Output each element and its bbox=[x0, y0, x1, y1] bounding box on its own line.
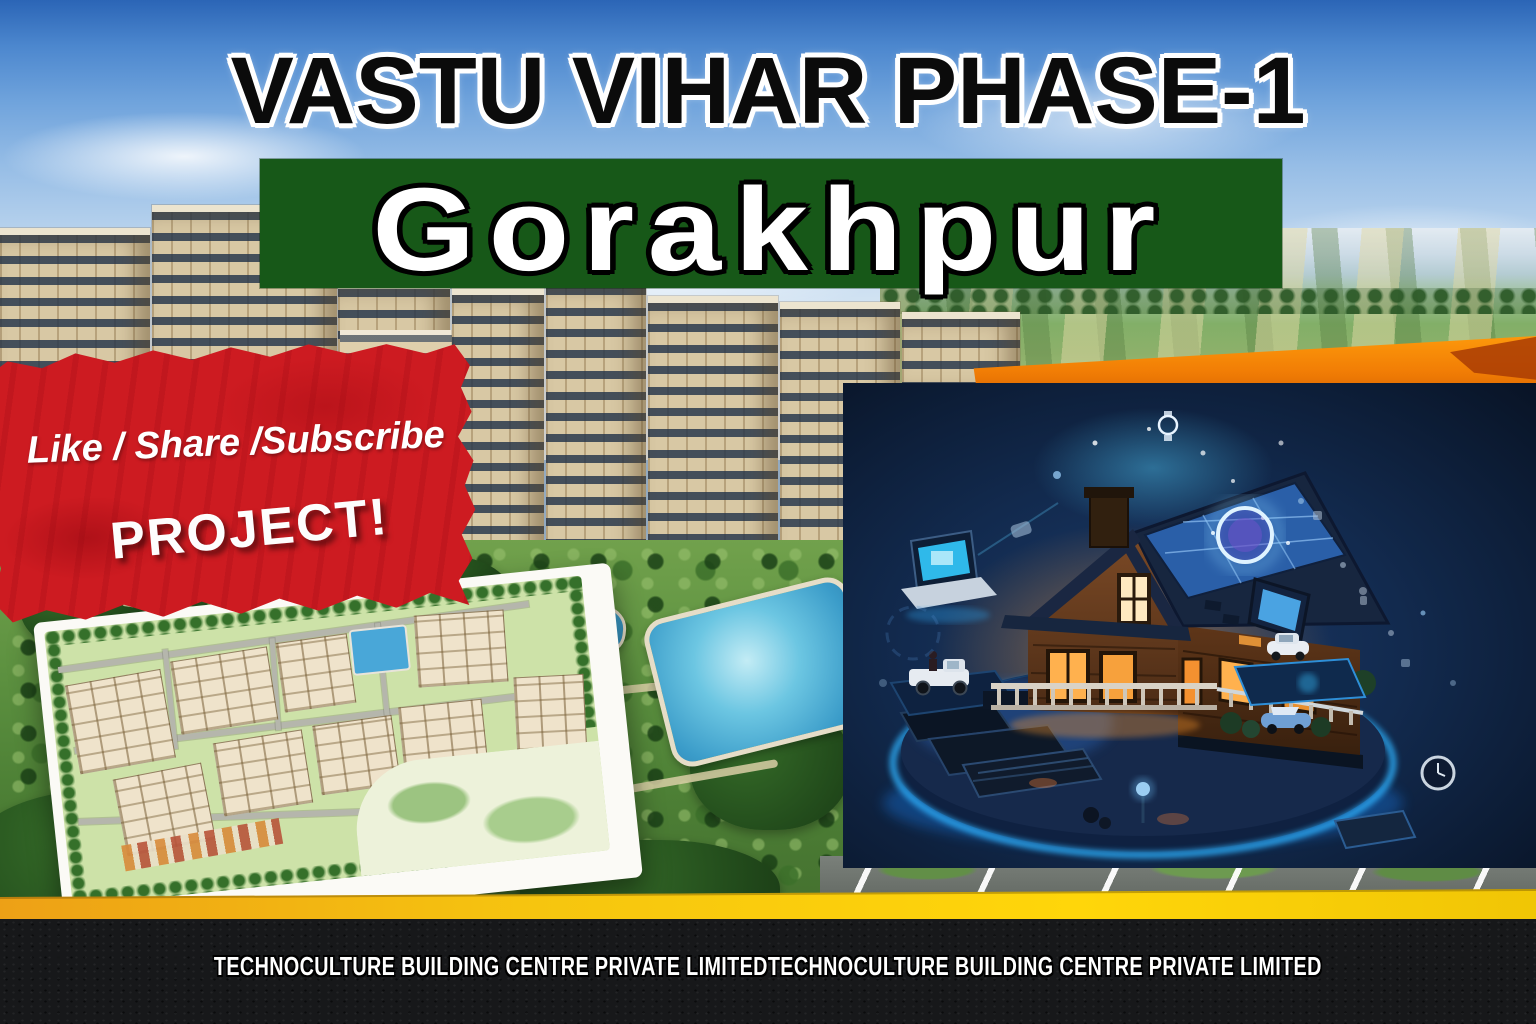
building-cluster bbox=[65, 669, 176, 774]
project-text: PROJECT! bbox=[108, 487, 391, 572]
smart-home-scene bbox=[843, 383, 1536, 868]
red-paint-ribbon: Like / Share /Subscribe PROJECT! bbox=[0, 333, 479, 623]
building-cluster bbox=[414, 610, 509, 688]
location-banner-text: Gorakhpur bbox=[373, 171, 1170, 288]
master-plan-sheet bbox=[33, 563, 643, 938]
building-cluster bbox=[213, 729, 313, 816]
master-plan-drawing bbox=[44, 576, 610, 907]
plan-pool bbox=[349, 624, 411, 676]
building-cluster bbox=[170, 646, 278, 734]
building-cluster bbox=[275, 633, 356, 712]
footer-bar: TECHNOCULTURE BUILDING CENTRE PRIVATE LI… bbox=[0, 919, 1536, 1024]
main-title: VASTU VIHAR PHASE-1 bbox=[0, 44, 1536, 139]
like-share-subscribe-text: Like / Share /Subscribe bbox=[26, 414, 446, 473]
company-name-text: TECHNOCULTURE BUILDING CENTRE PRIVATE LI… bbox=[214, 951, 1322, 1024]
location-banner: Gorakhpur bbox=[260, 159, 1282, 288]
smart-home-illustration bbox=[843, 383, 1536, 868]
building-cluster bbox=[513, 674, 587, 752]
thumbnail-canvas: TECHNOCULTURE BUILDING CENTRE PRIVATE LI… bbox=[0, 0, 1536, 1024]
